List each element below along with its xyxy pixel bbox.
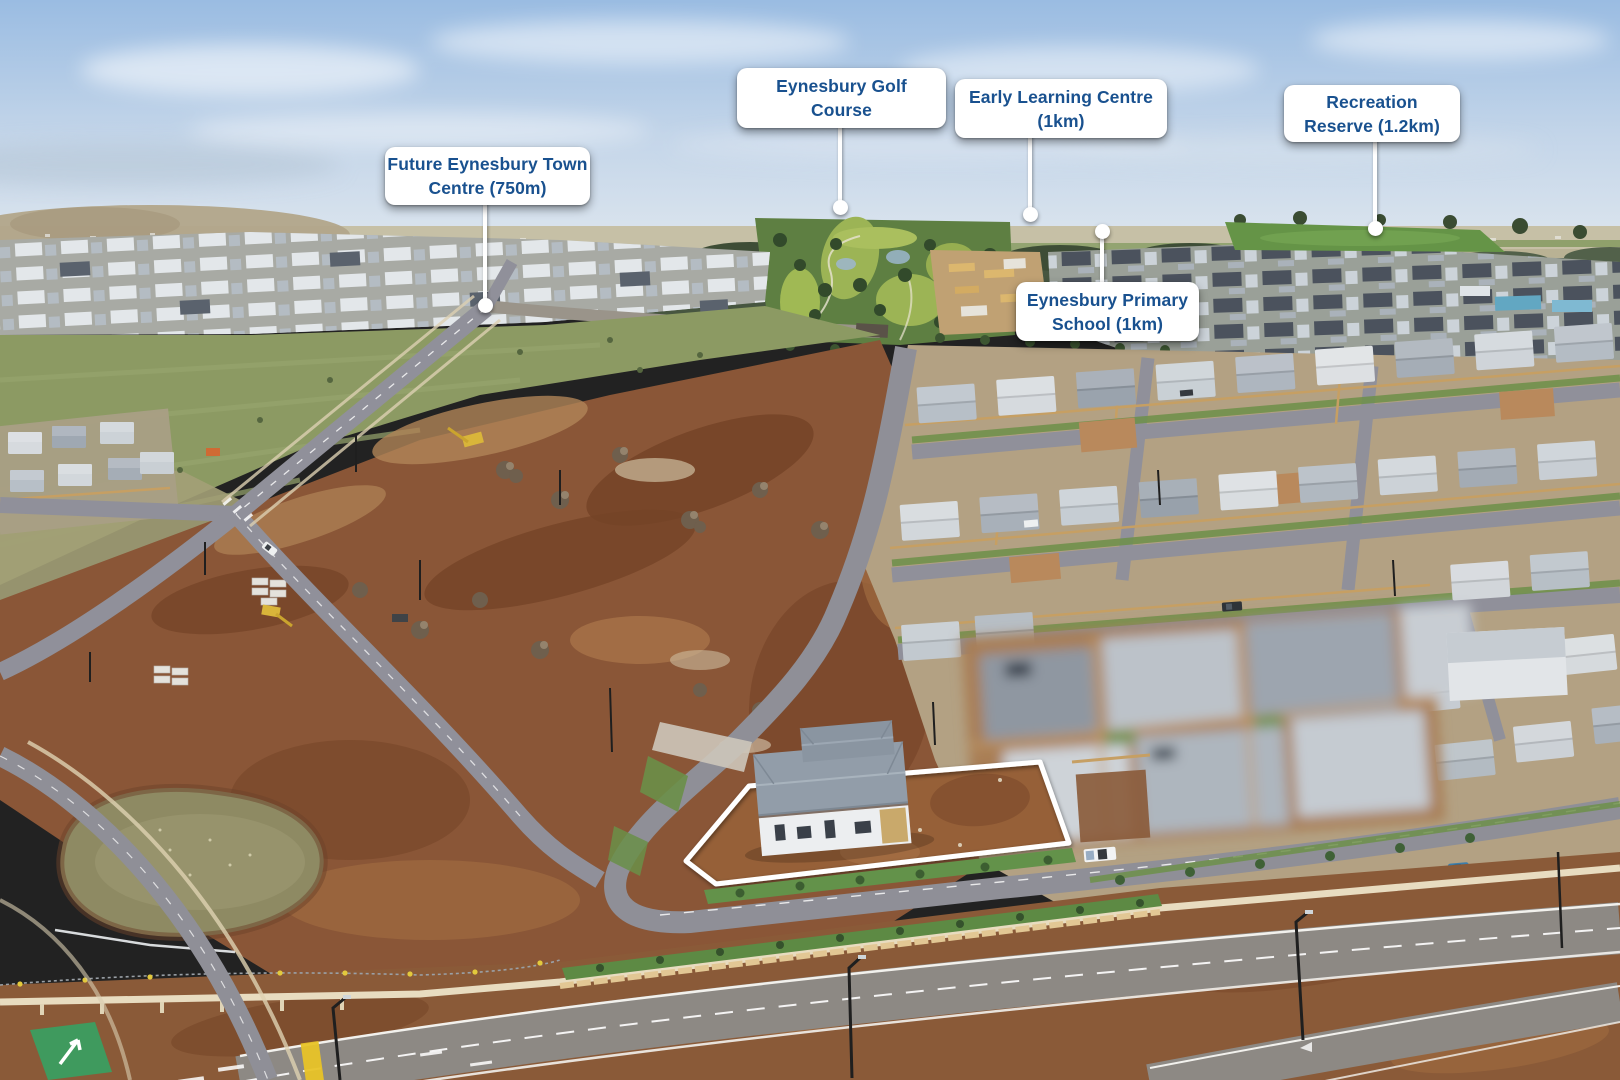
pointer-line-town-centre bbox=[483, 201, 487, 301]
pointer-line-recreation-reserve bbox=[1373, 138, 1377, 225]
label-line: School (1km) bbox=[1052, 312, 1163, 336]
pointer-dot-town-centre bbox=[478, 298, 493, 313]
vehicle-dark-ute bbox=[1222, 601, 1243, 611]
label-line: Early Learning Centre bbox=[969, 85, 1153, 109]
pointer-line-early-learning bbox=[1028, 134, 1032, 211]
aerial-photo: Future Eynesbury Town Centre (750m) Eyne… bbox=[0, 0, 1620, 1080]
label-line: Eynesbury Golf bbox=[776, 74, 907, 98]
label-primary-school: Eynesbury Primary School (1km) bbox=[1016, 282, 1199, 341]
label-line: Centre (750m) bbox=[428, 176, 546, 200]
vehicle-white-ute bbox=[1083, 847, 1116, 863]
label-line: Recreation bbox=[1326, 90, 1417, 114]
label-future-town-centre: Future Eynesbury Town Centre (750m) bbox=[385, 147, 590, 205]
pointer-dot-recreation-reserve bbox=[1368, 221, 1383, 236]
pointer-dot-early-learning bbox=[1023, 207, 1038, 222]
label-line: (1km) bbox=[1037, 109, 1084, 133]
parked-car bbox=[1180, 389, 1193, 396]
label-golf-course: Eynesbury Golf Course bbox=[737, 68, 946, 128]
pointer-line-golf-course bbox=[838, 124, 842, 204]
label-line: Eynesbury Primary bbox=[1027, 288, 1188, 312]
label-early-learning-centre: Early Learning Centre (1km) bbox=[955, 79, 1167, 138]
label-line: Reserve (1.2km) bbox=[1304, 114, 1440, 138]
pointer-line-primary-school bbox=[1100, 234, 1104, 284]
parked-car bbox=[1024, 519, 1039, 527]
pointer-dot-primary-school bbox=[1095, 224, 1110, 239]
duplex-roof bbox=[1446, 627, 1565, 663]
label-recreation-reserve: Recreation Reserve (1.2km) bbox=[1284, 85, 1460, 142]
pointer-dot-golf-course bbox=[833, 200, 848, 215]
aerial-scene bbox=[0, 0, 1620, 1080]
label-line: Future Eynesbury Town bbox=[387, 152, 587, 176]
label-line: Course bbox=[811, 98, 872, 122]
